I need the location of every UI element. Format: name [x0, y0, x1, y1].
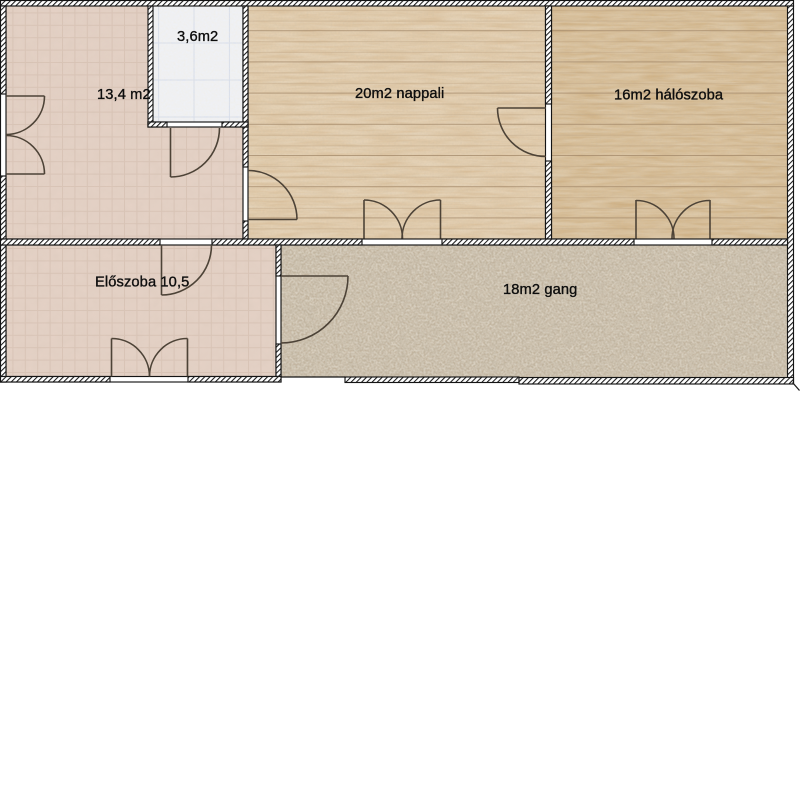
svg-text:18m2 gang: 18m2 gang	[503, 282, 577, 298]
svg-text:13,4 m2: 13,4 m2	[97, 87, 151, 103]
svg-text:3,6m2: 3,6m2	[177, 29, 218, 45]
svg-text:16m2 hálószoba: 16m2 hálószoba	[614, 88, 724, 104]
svg-text:20m2 nappali: 20m2 nappali	[355, 86, 444, 102]
svg-text:Előszoba 10,5: Előszoba 10,5	[95, 275, 189, 291]
